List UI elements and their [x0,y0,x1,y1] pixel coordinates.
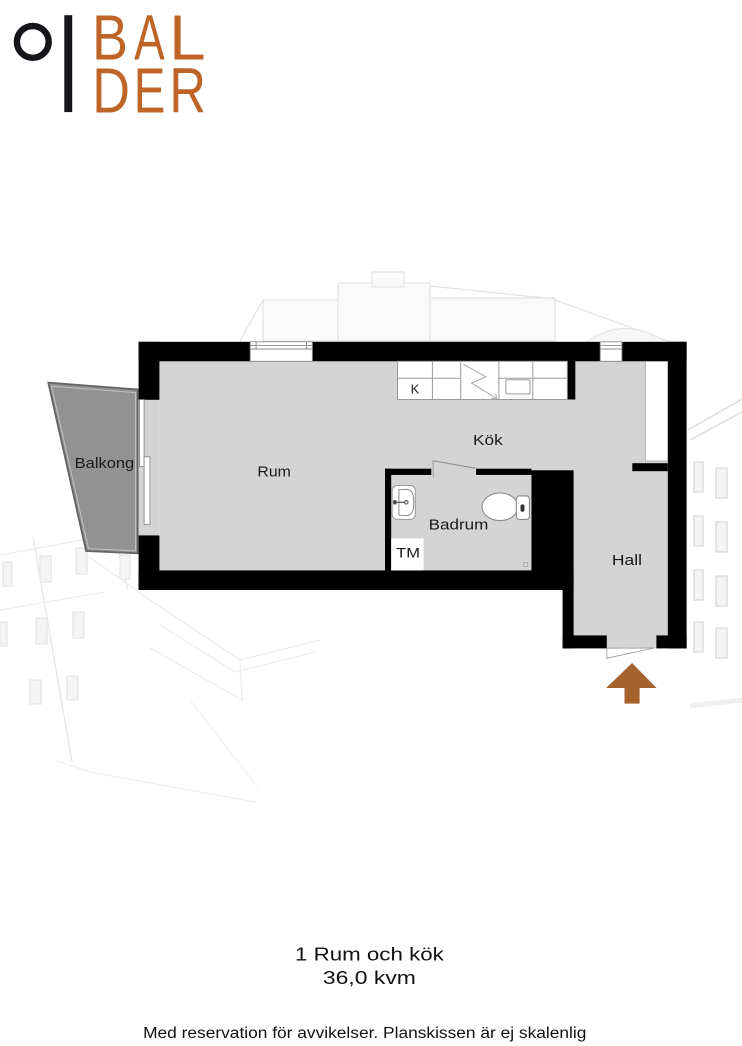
svg-text:TM: TM [396,544,420,560]
svg-text:E: E [134,55,166,127]
svg-text:Balkong: Balkong [75,455,135,472]
svg-text:Kök: Kök [473,432,503,449]
svg-text:D: D [92,55,130,127]
svg-text:R: R [169,55,206,127]
svg-text:Badrum: Badrum [429,517,489,534]
svg-text:K: K [411,382,420,397]
svg-text:Med reservation för avvikelser: Med reservation för avvikelser. Planskis… [143,1025,586,1042]
svg-text:36,0 kvm: 36,0 kvm [323,968,416,988]
svg-text:Hall: Hall [612,552,642,569]
svg-text:Rum: Rum [257,464,290,481]
svg-text:1 Rum och kök: 1 Rum och kök [295,945,445,965]
